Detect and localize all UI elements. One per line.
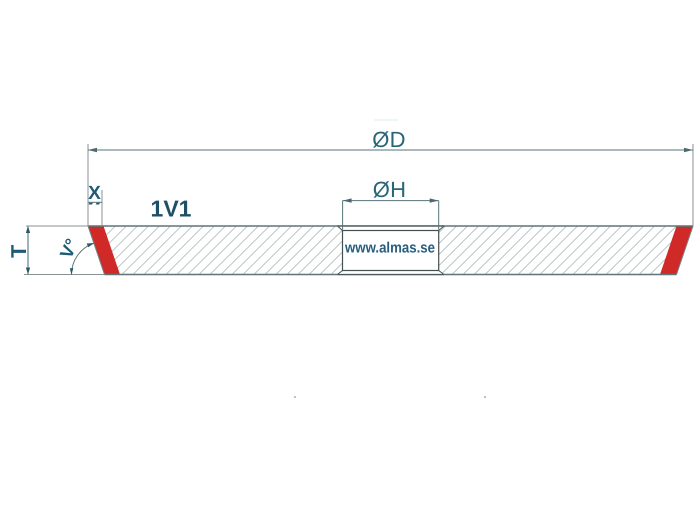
svg-text:V°: V°: [56, 236, 82, 262]
svg-text:1V1: 1V1: [151, 196, 192, 222]
svg-text:www.almas.se: www.almas.se: [344, 240, 435, 257]
svg-text:ØD: ØD: [372, 127, 406, 152]
svg-text:ØH: ØH: [373, 177, 407, 202]
svg-text:X: X: [88, 183, 101, 204]
svg-text:T: T: [7, 245, 31, 258]
